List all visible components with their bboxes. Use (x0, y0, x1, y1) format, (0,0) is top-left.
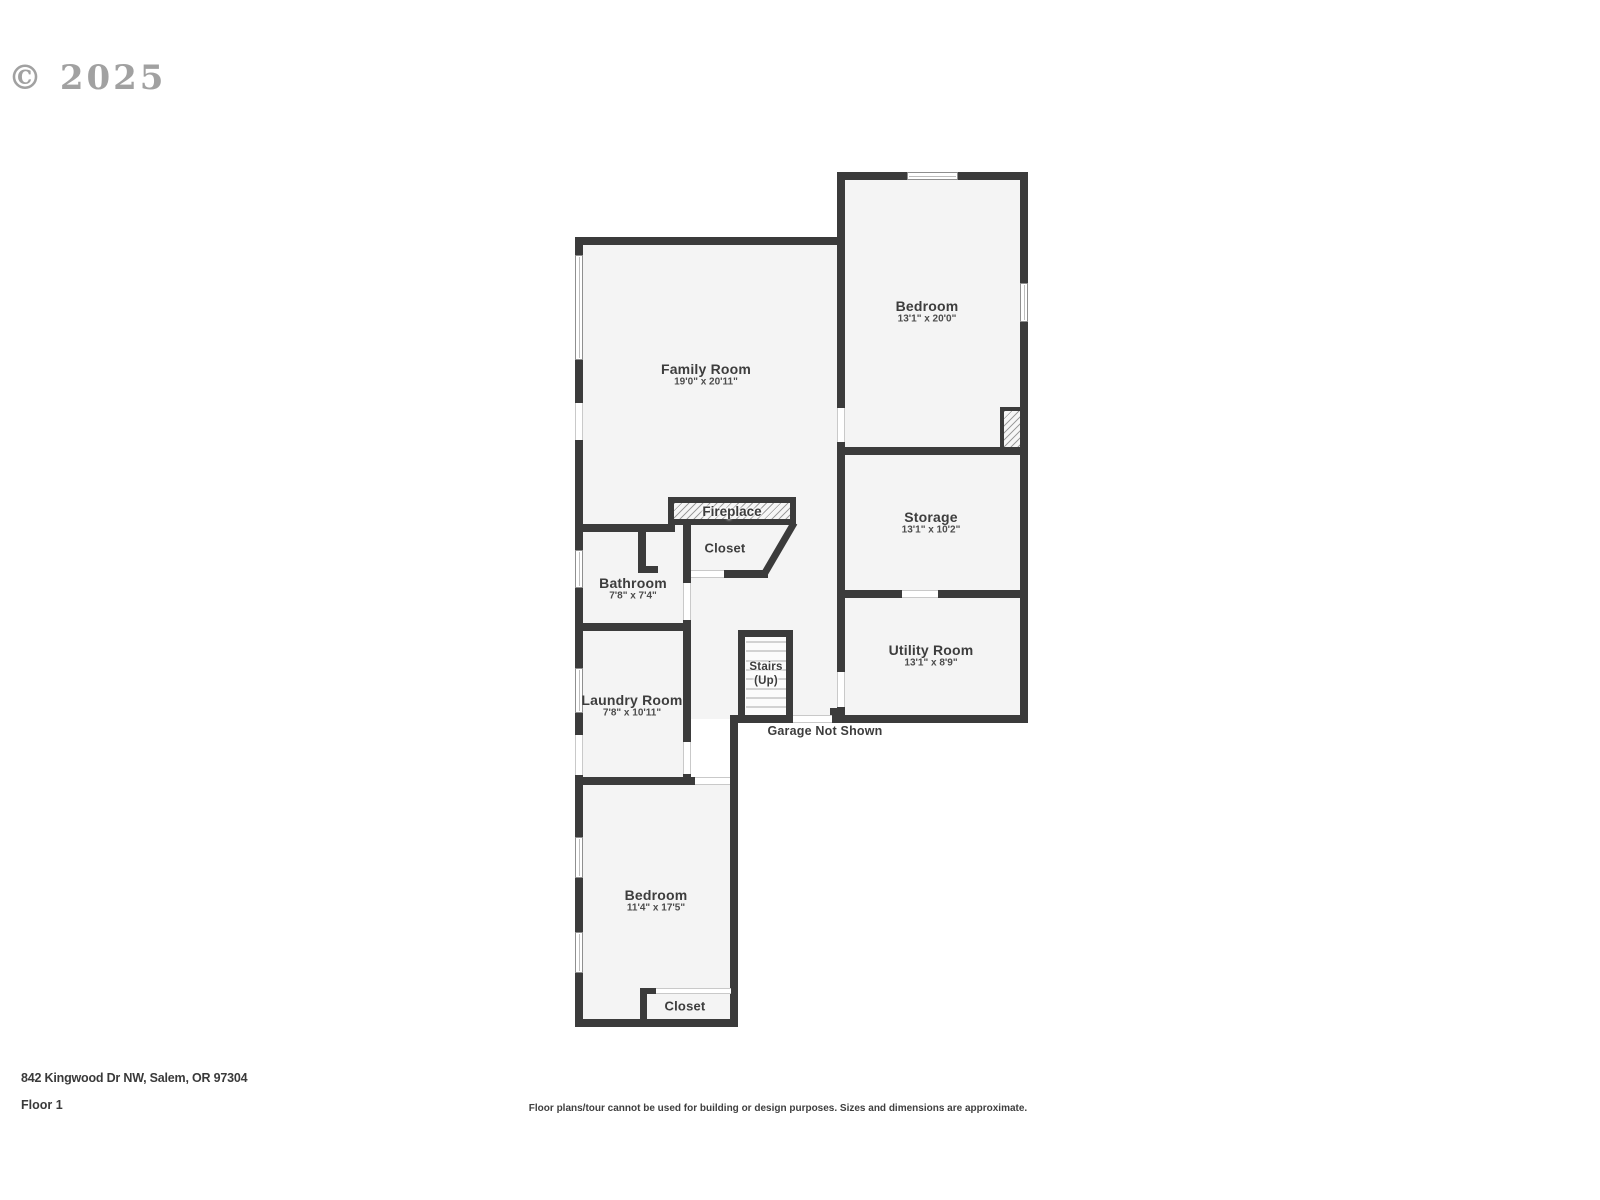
stair-tread (746, 688, 786, 690)
stair-tread (746, 641, 786, 643)
room-dims-bedroom-bottom: 11'4" x 17'5" (627, 903, 685, 914)
stairs-up-label: (Up) (754, 675, 778, 687)
wall-bedroom-bottom-right (730, 715, 738, 1027)
wall-family-top (575, 237, 845, 245)
wall-bedroom-bottom-bottom (575, 1019, 738, 1027)
door-opening (837, 408, 845, 442)
door-opening (683, 742, 691, 774)
window (907, 172, 958, 180)
door-opening (837, 672, 845, 707)
floor-plan-page: © 2025 Fireplace (0, 0, 1600, 1200)
door-opening (691, 570, 724, 578)
closet-lower-label: Closet (665, 999, 706, 1014)
room-dims-bathroom: 7'8" x 7'4" (609, 591, 657, 602)
window (575, 932, 583, 973)
wall-bathroom-laundry-divider (575, 623, 691, 631)
room-dims-family-room: 19'0" x 20'11" (674, 377, 738, 388)
room-label-laundry: Laundry Room (581, 692, 682, 708)
room-label-bathroom: Bathroom (599, 575, 667, 591)
room-dims-storage: 13'1" x 10'2" (902, 525, 961, 536)
room-label-utility: Utility Room (889, 642, 974, 658)
room-label-bedroom-bottom: Bedroom (625, 887, 688, 903)
wall-closet2-front (640, 988, 656, 994)
room-dims-laundry: 7'8" x 10'11" (603, 708, 661, 719)
wall-bathroom-stub-foot (638, 566, 658, 573)
room-label-bedroom-top: Bedroom (896, 298, 959, 314)
wall-bathroom-top (575, 524, 675, 532)
closet-upper-label: Closet (705, 541, 746, 556)
wall-stairs-right (786, 630, 793, 723)
window (1020, 283, 1028, 322)
room-dims-utility: 13'1" x 8'9" (904, 658, 957, 669)
room-label-family-room: Family Room (661, 361, 751, 377)
wall-stairs-top (738, 630, 793, 637)
wall-bedroom-bottom-top (575, 777, 695, 785)
copyright-watermark: © 2025 (8, 58, 166, 98)
wall-stairs-left (738, 630, 745, 723)
door-opening (902, 590, 938, 598)
stair-tread (746, 697, 786, 699)
room-dims-bedroom-top: 13'1" x 20'0" (898, 314, 957, 325)
door-opening (695, 777, 730, 785)
fireplace-label: Fireplace (702, 504, 761, 519)
fireplace: Fireplace (668, 497, 796, 525)
window (575, 550, 583, 588)
disclaimer-text: Floor plans/tour cannot be used for buil… (529, 1103, 1027, 1114)
stairs-label: Stairs (749, 661, 782, 673)
stair-tread (746, 650, 786, 652)
wall-bottom-right (830, 715, 1028, 723)
door-opening (793, 715, 832, 723)
window (575, 255, 583, 360)
door-opening (575, 403, 583, 440)
address-text: 842 Kingwood Dr NW, Salem, OR 97304 (21, 1071, 247, 1085)
floor-label: Floor 1 (21, 1098, 63, 1112)
window (575, 837, 583, 878)
door-opening (683, 583, 691, 620)
door-opening (575, 735, 583, 775)
wall-bathroom-stub (638, 524, 646, 572)
garage-note: Garage Not Shown (767, 724, 882, 738)
door-opening (656, 988, 731, 994)
room-label-storage: Storage (904, 509, 958, 525)
hatched-fixture (1000, 407, 1024, 451)
stair-tread (746, 706, 786, 708)
